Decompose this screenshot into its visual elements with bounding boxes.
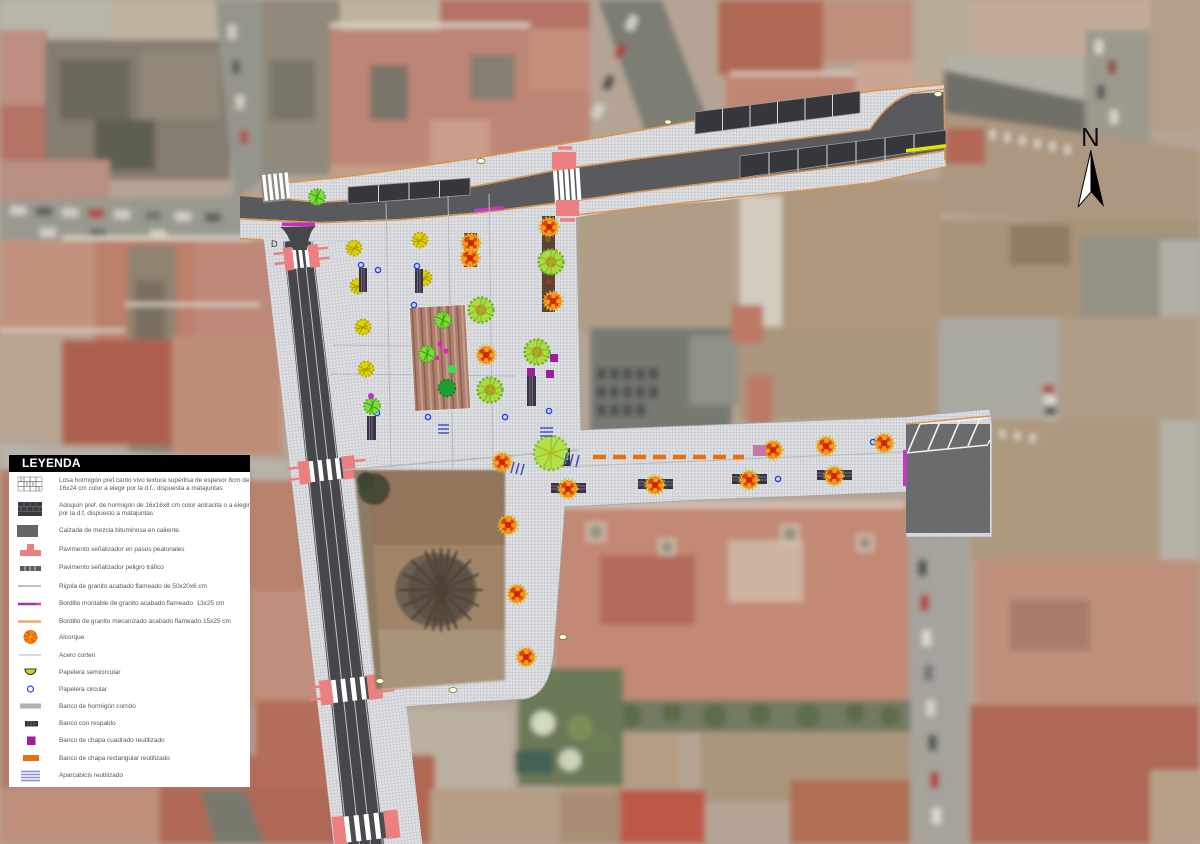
svg-text:D: D: [271, 239, 278, 249]
svg-text:N: N: [1081, 122, 1100, 152]
